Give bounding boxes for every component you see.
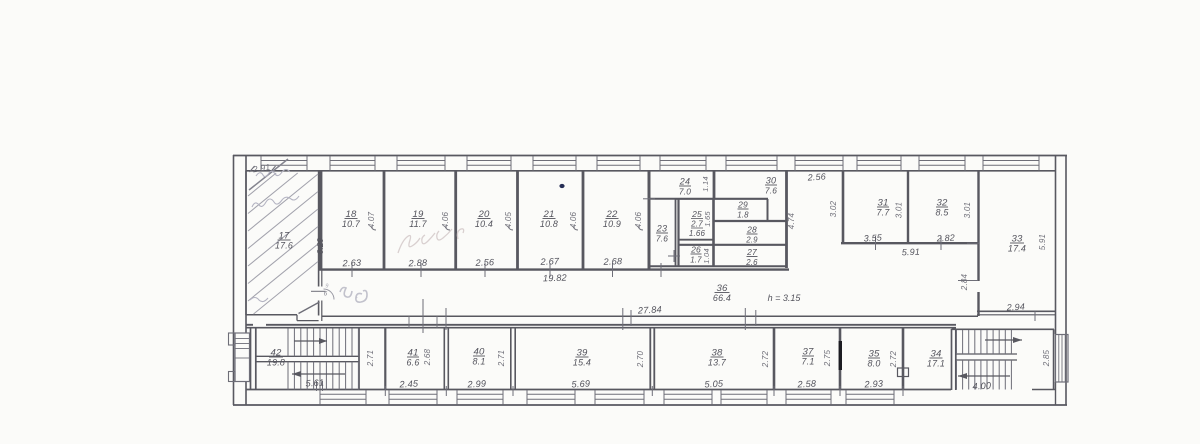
svg-text:30: 30 <box>766 176 776 186</box>
svg-text:2.7: 2.7 <box>690 220 703 229</box>
svg-text:7.1: 7.1 <box>802 357 815 367</box>
svg-text:3.01: 3.01 <box>963 202 972 218</box>
svg-text:2.45: 2.45 <box>398 378 419 389</box>
svg-text:h = 3.15: h = 3.15 <box>768 293 802 303</box>
svg-text:10.9: 10.9 <box>603 219 621 229</box>
svg-text:9: 9 <box>325 284 328 290</box>
svg-text:6: 6 <box>324 291 328 298</box>
svg-text:6.29: 6.29 <box>316 237 325 254</box>
svg-text:26: 26 <box>690 245 701 255</box>
svg-text:5.69: 5.69 <box>571 379 590 390</box>
svg-text:4.05: 4.05 <box>504 211 513 228</box>
svg-text:66.4: 66.4 <box>713 293 731 303</box>
svg-text:10.8: 10.8 <box>540 219 558 229</box>
svg-text:28: 28 <box>746 225 757 235</box>
svg-text:2.84: 2.84 <box>960 273 969 291</box>
svg-text:2.72: 2.72 <box>761 350 770 368</box>
svg-text:2.68: 2.68 <box>423 348 432 366</box>
svg-text:7.0: 7.0 <box>679 187 691 197</box>
svg-text:3.01: 3.01 <box>895 202 904 218</box>
svg-text:6.6: 6.6 <box>407 358 420 368</box>
svg-text:2.71: 2.71 <box>497 350 506 367</box>
svg-text:11.7: 11.7 <box>409 219 427 229</box>
svg-text:1.8: 1.8 <box>737 211 749 220</box>
svg-text:2.6: 2.6 <box>745 258 758 267</box>
svg-text:2.9: 2.9 <box>745 236 758 245</box>
svg-text:29: 29 <box>737 200 748 210</box>
svg-text:2.63: 2.63 <box>341 258 362 269</box>
svg-text:7.6: 7.6 <box>765 186 777 196</box>
svg-text:15.4: 15.4 <box>573 358 591 368</box>
svg-text:2.71: 2.71 <box>366 350 375 367</box>
svg-text:2.93: 2.93 <box>863 378 884 389</box>
svg-text:17.1: 17.1 <box>927 359 945 369</box>
svg-text:2.94: 2.94 <box>1005 302 1025 313</box>
svg-text:3.55: 3.55 <box>863 232 883 243</box>
svg-text:2.70: 2.70 <box>636 350 645 368</box>
svg-text:1.65: 1.65 <box>703 211 712 227</box>
svg-text:19.8: 19.8 <box>267 358 285 368</box>
svg-text:17.6: 17.6 <box>275 241 293 251</box>
svg-text:2.56: 2.56 <box>474 257 495 268</box>
svg-text:10.7: 10.7 <box>342 219 361 229</box>
svg-text:4.07: 4.07 <box>367 211 376 228</box>
svg-text:27: 27 <box>746 247 757 257</box>
svg-text:2.58: 2.58 <box>796 378 817 389</box>
svg-text:13.7: 13.7 <box>708 358 727 368</box>
svg-text:4.74: 4.74 <box>787 212 796 229</box>
svg-text:10.4: 10.4 <box>475 219 493 229</box>
svg-text:27.84: 27.84 <box>637 304 662 315</box>
svg-text:5.05: 5.05 <box>704 378 724 389</box>
svg-text:2.75: 2.75 <box>823 349 832 367</box>
svg-text:1.14: 1.14 <box>701 176 710 191</box>
svg-text:4.06: 4.06 <box>569 211 578 228</box>
svg-text:8.5: 8.5 <box>936 208 949 218</box>
svg-text:4.06: 4.06 <box>634 211 643 228</box>
svg-text:17.4: 17.4 <box>1008 244 1026 254</box>
svg-text:25: 25 <box>691 209 702 219</box>
svg-text:4.06: 4.06 <box>441 211 450 228</box>
svg-text:7.7: 7.7 <box>877 208 891 218</box>
svg-text:1.7: 1.7 <box>690 256 702 265</box>
svg-text:2.88: 2.88 <box>407 258 428 269</box>
svg-text:2.67: 2.67 <box>539 256 560 267</box>
svg-text:3.02: 3.02 <box>829 200 838 217</box>
svg-text:2.85: 2.85 <box>1042 349 1051 367</box>
svg-text:2.56: 2.56 <box>806 171 826 182</box>
svg-text:5.91: 5.91 <box>902 247 921 258</box>
svg-text:19.82: 19.82 <box>543 273 567 284</box>
svg-text:5.91: 5.91 <box>1038 234 1047 250</box>
svg-text:8.1: 8.1 <box>473 357 486 367</box>
svg-text:2.72: 2.72 <box>889 350 898 368</box>
svg-text:2.68: 2.68 <box>602 256 623 267</box>
svg-text:2.82: 2.82 <box>935 233 955 244</box>
svg-text:8.0: 8.0 <box>868 359 881 369</box>
svg-text:5.61: 5.61 <box>305 378 324 389</box>
svg-text:24: 24 <box>679 177 690 187</box>
svg-text:1.04: 1.04 <box>702 248 711 263</box>
svg-text:4.00: 4.00 <box>972 380 992 391</box>
svg-text:2.99: 2.99 <box>466 379 486 390</box>
svg-text:7.6: 7.6 <box>656 234 668 244</box>
svg-text:23: 23 <box>656 224 667 234</box>
svg-text:1.66: 1.66 <box>689 229 706 238</box>
